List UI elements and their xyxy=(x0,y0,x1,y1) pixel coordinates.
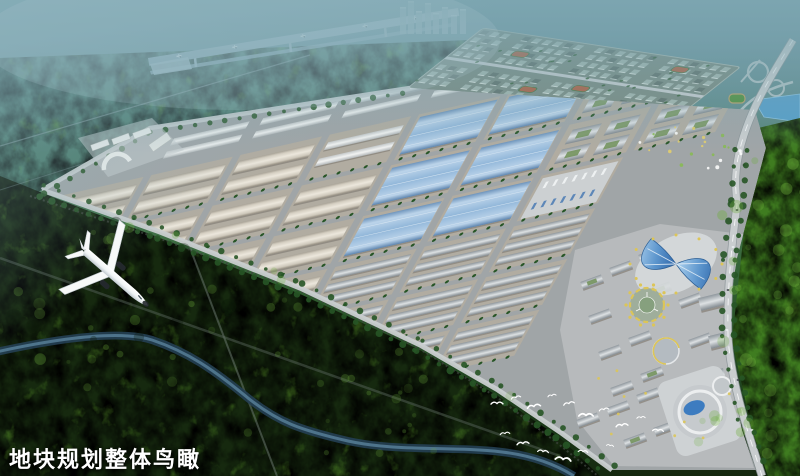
aerial-rendering: 地块规划整体鸟瞰 xyxy=(0,0,800,476)
caption: 地块规划整体鸟瞰 xyxy=(9,442,201,474)
scene-svg xyxy=(0,0,800,476)
